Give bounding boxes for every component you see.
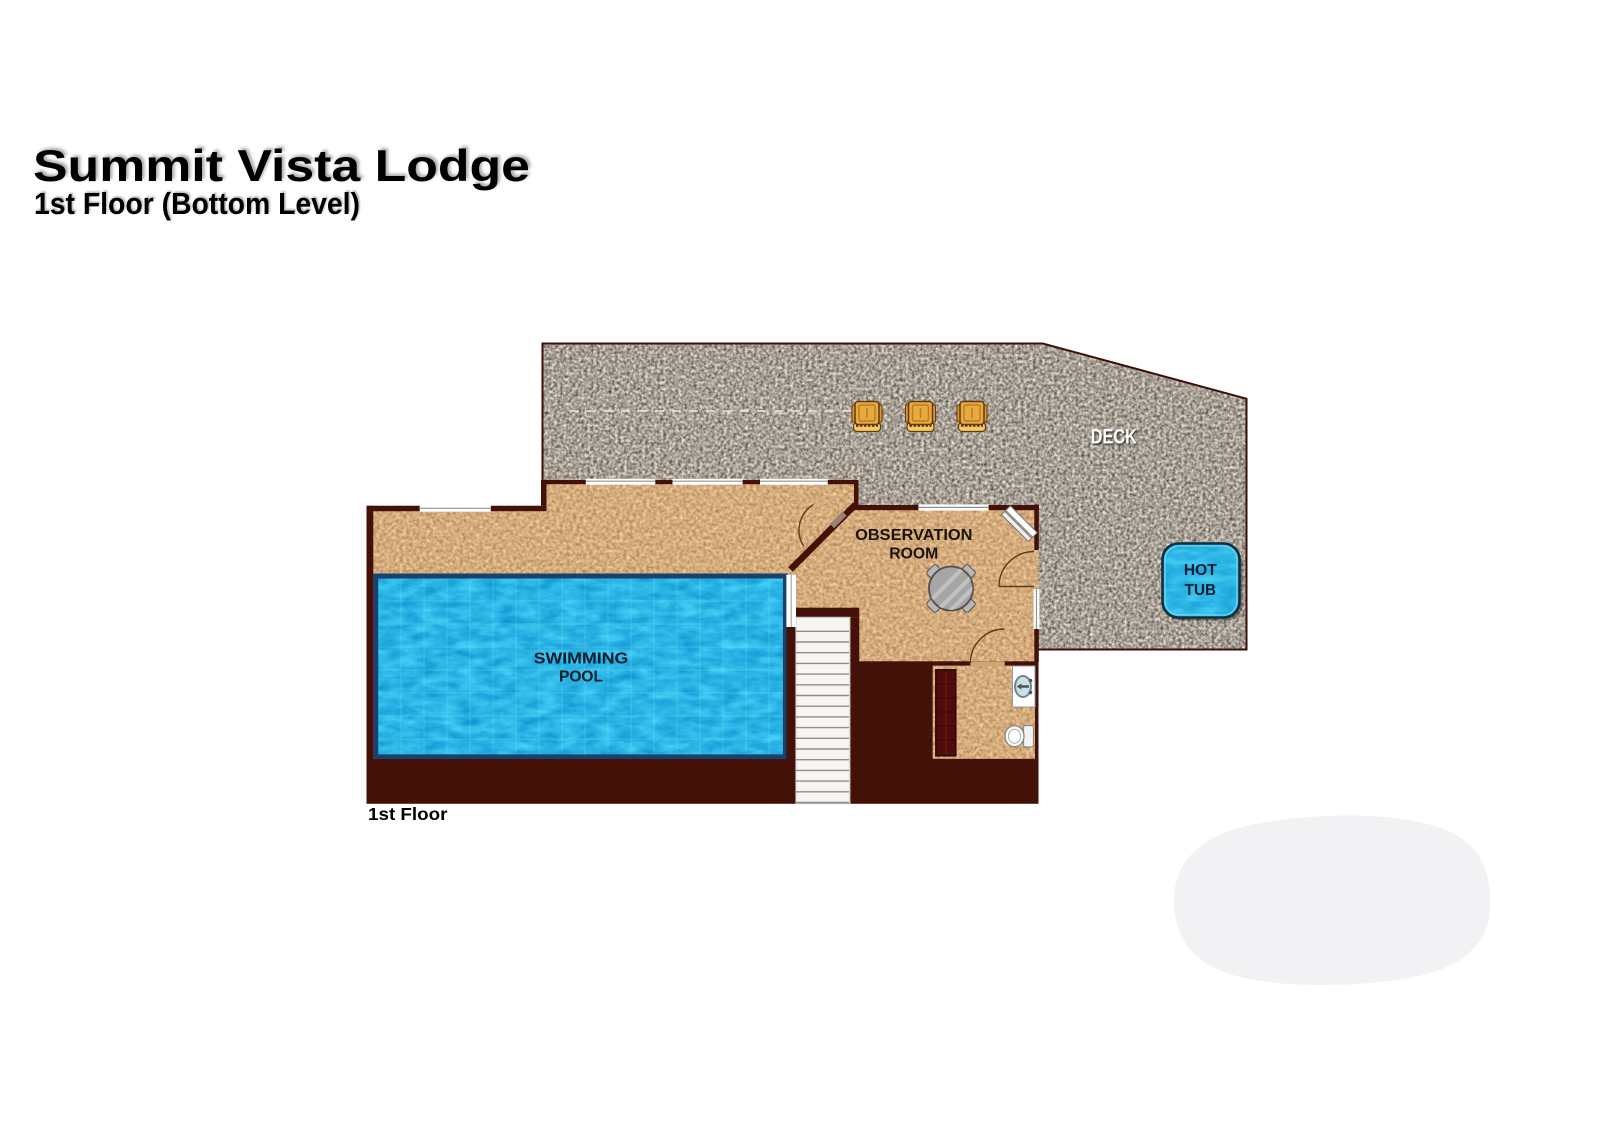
svg-text:ROOM: ROOM	[889, 545, 938, 562]
svg-text:TUB: TUB	[1185, 582, 1216, 599]
svg-text:1st Floor: 1st Floor	[368, 804, 448, 824]
svg-text:1st Floor (Bottom Level): 1st Floor (Bottom Level)	[34, 186, 360, 221]
svg-text:HOT: HOT	[1184, 562, 1217, 579]
svg-text:SWIMMING: SWIMMING	[534, 651, 629, 668]
svg-text:DECK: DECK	[1091, 426, 1137, 449]
svg-text:OBSERVATION: OBSERVATION	[855, 527, 972, 544]
svg-text:Summit Vista Lodge: Summit Vista Lodge	[33, 142, 530, 191]
svg-text:POOL: POOL	[559, 669, 603, 686]
